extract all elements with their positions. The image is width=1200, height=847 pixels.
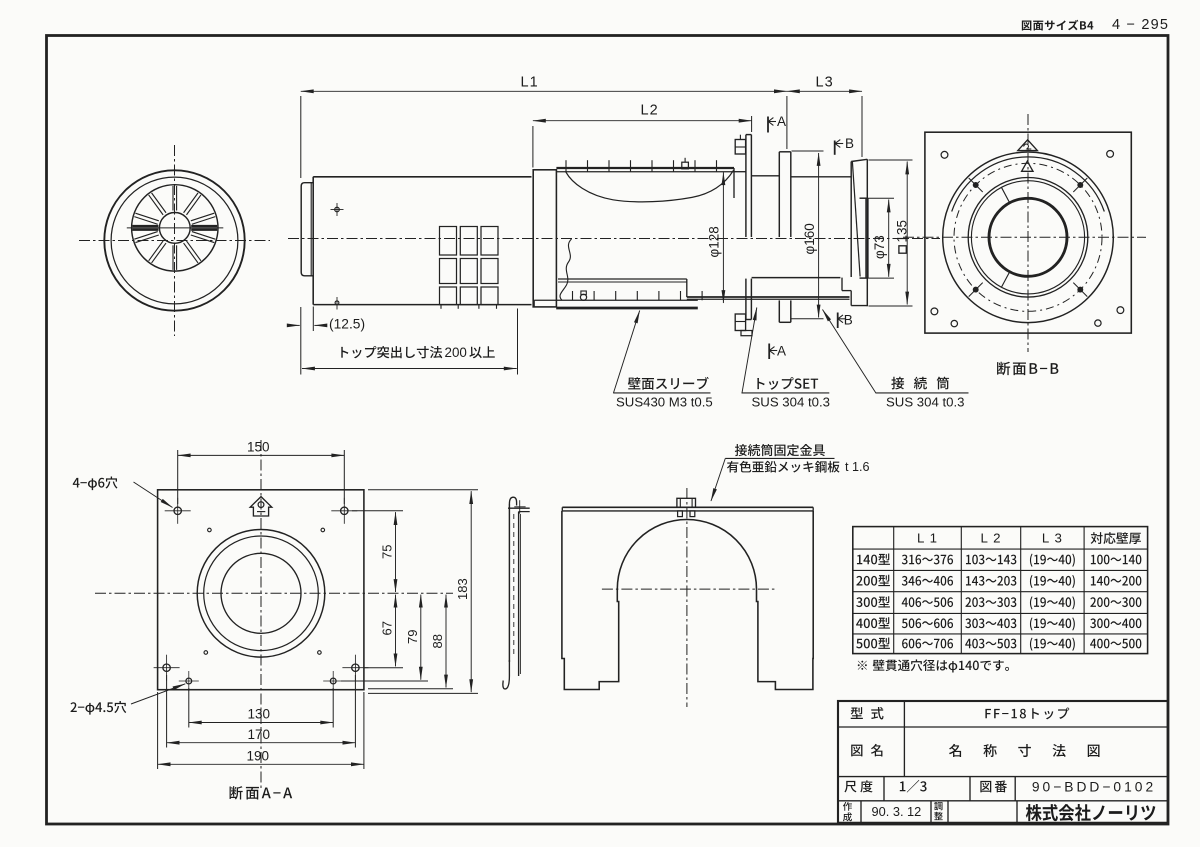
svg-text:(12.5): (12.5) — [329, 317, 365, 332]
svg-text:φ128: φ128 — [707, 226, 722, 257]
svg-text:φ160: φ160 — [802, 223, 817, 254]
svg-text:B: B — [845, 136, 854, 151]
svg-text:135: 135 — [894, 220, 909, 243]
svg-text:90. 3. 12: 90. 3. 12 — [871, 804, 921, 819]
svg-text:A: A — [777, 114, 786, 129]
svg-text:79: 79 — [405, 630, 420, 644]
svg-text:L 3: L 3 — [1042, 531, 1063, 546]
svg-text:90−BDD−0102: 90−BDD−0102 — [1032, 779, 1156, 794]
svg-text:150: 150 — [247, 440, 270, 455]
svg-text:130: 130 — [248, 707, 271, 722]
svg-text:L 2: L 2 — [981, 531, 1002, 546]
svg-text:φ73: φ73 — [872, 235, 887, 259]
svg-text:A: A — [777, 344, 786, 359]
svg-text:170: 170 — [248, 727, 271, 742]
svg-text:88: 88 — [430, 634, 445, 648]
svg-text:L1: L1 — [521, 75, 539, 91]
svg-text:L3: L3 — [816, 75, 834, 91]
svg-text:SUS 304 t0.3: SUS 304 t0.3 — [752, 395, 830, 410]
svg-text:190: 190 — [247, 749, 270, 764]
svg-text:L2: L2 — [641, 103, 659, 119]
svg-text:SUS 304 t0.3: SUS 304 t0.3 — [886, 395, 964, 410]
svg-text:183: 183 — [455, 578, 470, 600]
svg-text:L 1: L 1 — [917, 531, 938, 546]
svg-text:t 1.6: t 1.6 — [845, 460, 870, 474]
svg-text:200: 200 — [445, 345, 467, 360]
svg-text:4 − 295: 4 − 295 — [1112, 17, 1169, 33]
svg-text:SUS430 M3 t0.5: SUS430 M3 t0.5 — [616, 395, 713, 410]
svg-text:75: 75 — [380, 545, 395, 559]
svg-text:67: 67 — [380, 621, 395, 635]
svg-text:B: B — [844, 313, 853, 328]
